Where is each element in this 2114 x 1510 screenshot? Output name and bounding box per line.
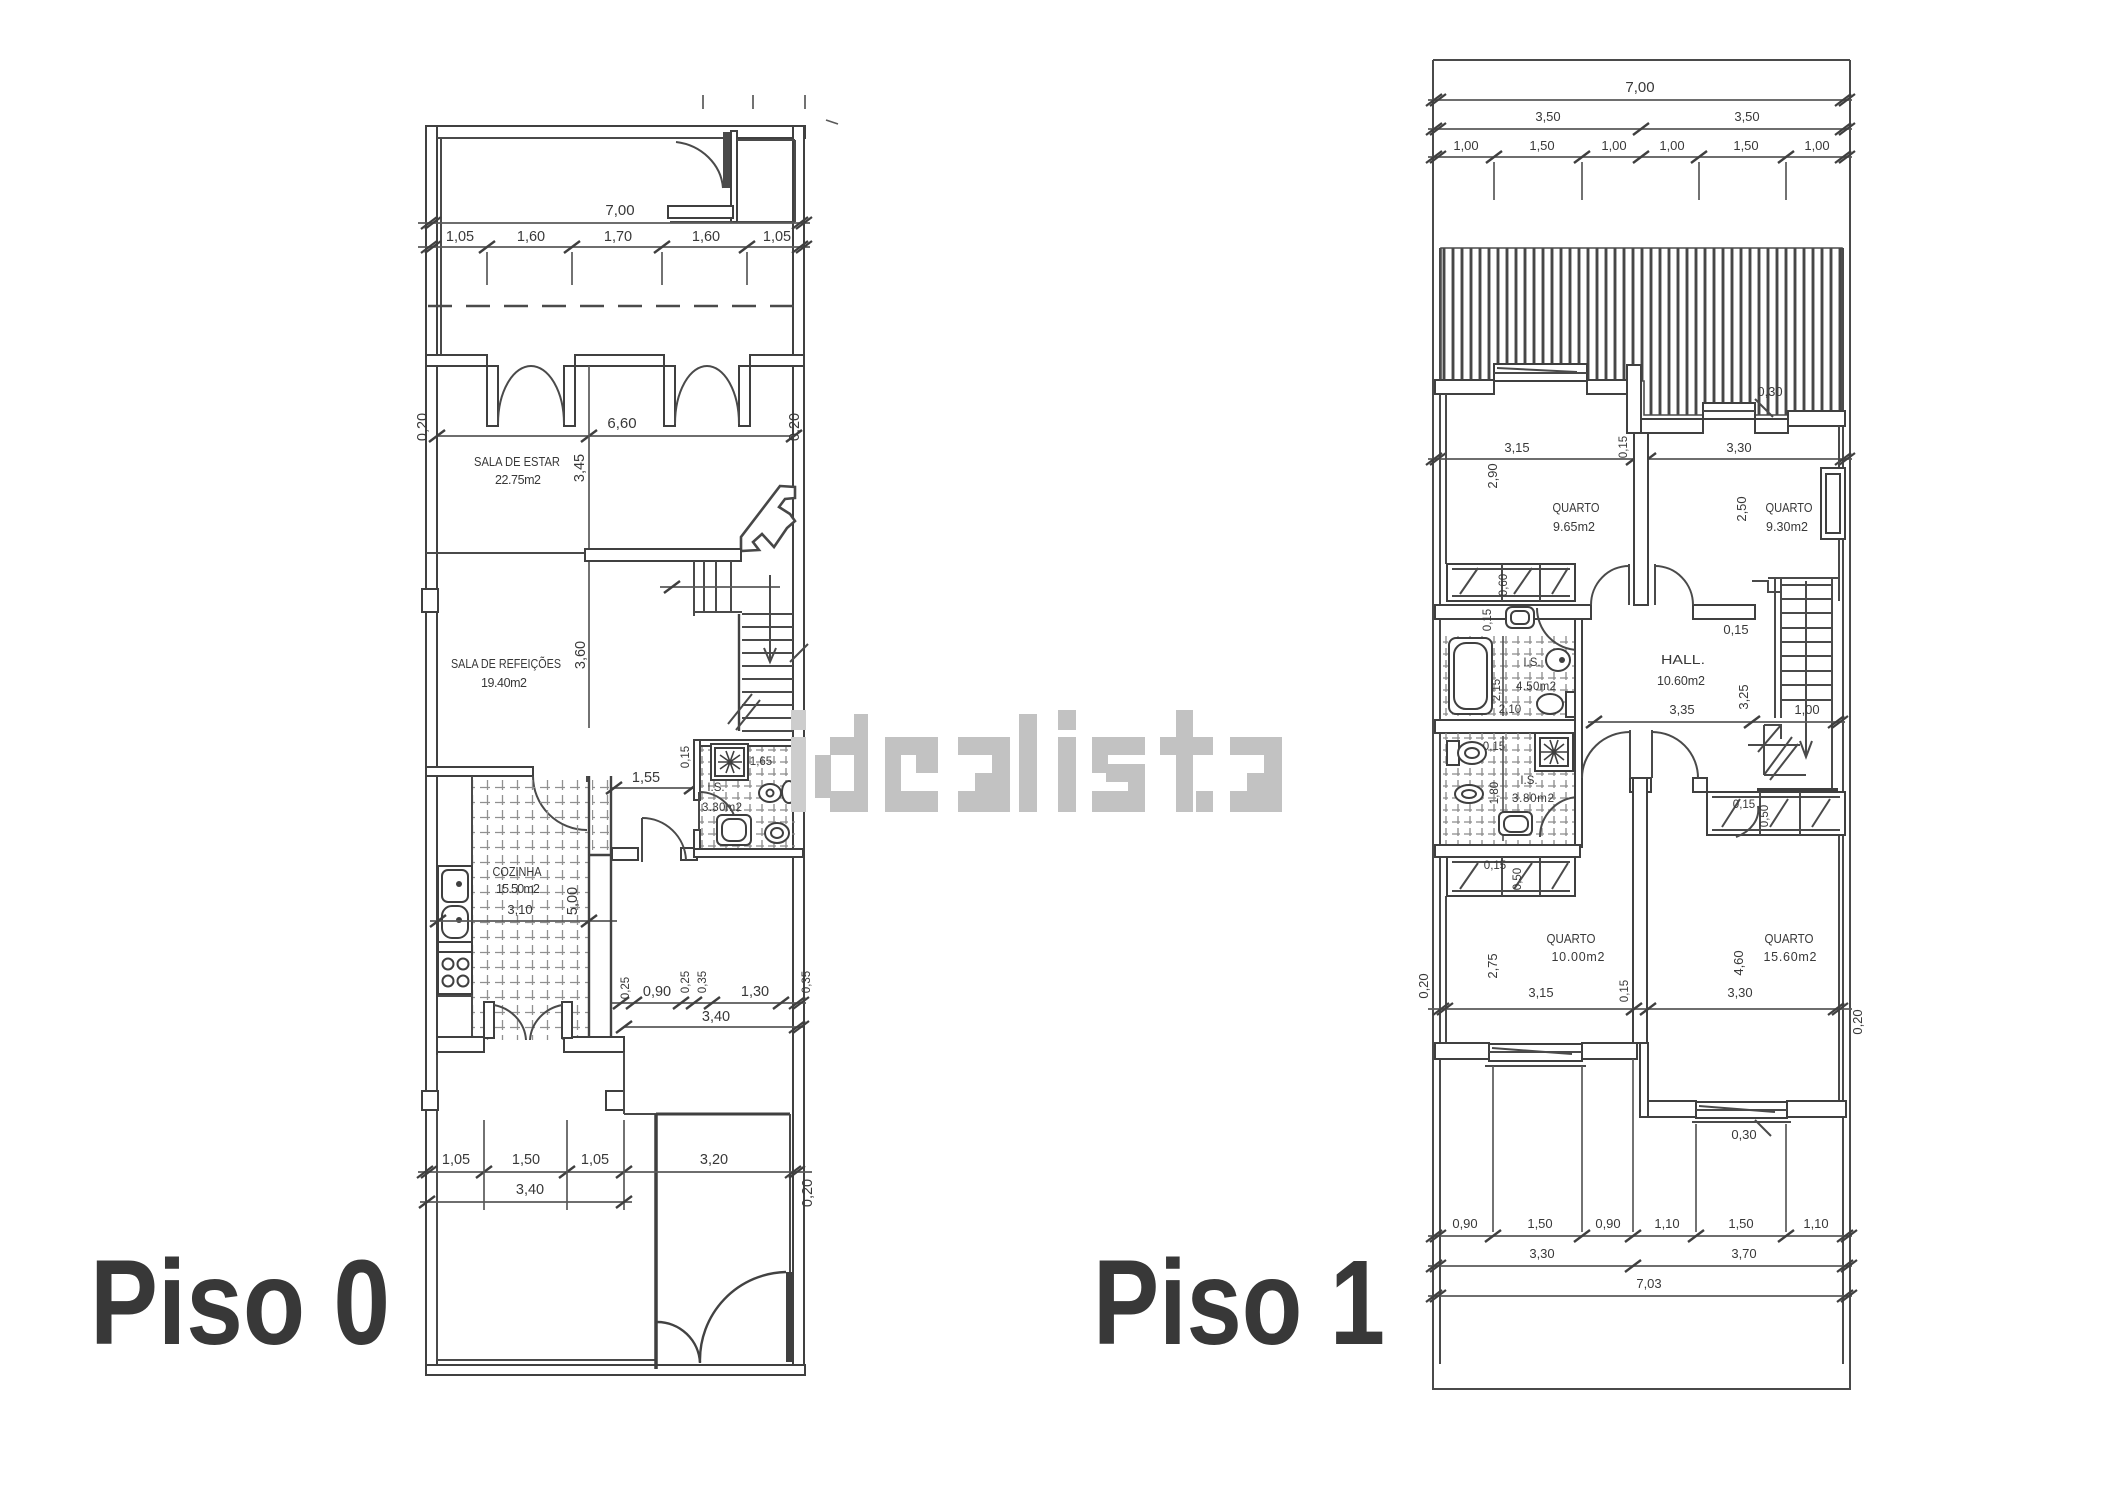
svg-text:1,60: 1,60 bbox=[692, 229, 720, 245]
svg-text:7,03: 7,03 bbox=[1636, 1276, 1661, 1291]
svg-text:0,30: 0,30 bbox=[1731, 1127, 1756, 1142]
svg-text:QUARTO: QUARTO bbox=[1547, 932, 1596, 946]
svg-text:0,15: 0,15 bbox=[1484, 860, 1506, 872]
svg-text:0,60: 0,60 bbox=[1498, 574, 1510, 596]
svg-text:22.75m2: 22.75m2 bbox=[495, 473, 541, 487]
svg-text:1,05: 1,05 bbox=[581, 1152, 609, 1168]
svg-text:1,80: 1,80 bbox=[1489, 782, 1501, 804]
svg-text:1,05: 1,05 bbox=[442, 1152, 470, 1168]
svg-text:1,70: 1,70 bbox=[604, 229, 632, 245]
svg-text:0,30: 0,30 bbox=[1757, 384, 1782, 399]
svg-text:0,90: 0,90 bbox=[643, 984, 671, 1000]
svg-text:1,65: 1,65 bbox=[750, 756, 772, 768]
svg-text:3,45: 3,45 bbox=[572, 454, 588, 482]
svg-text:1,50: 1,50 bbox=[512, 1152, 540, 1168]
svg-text:7,00: 7,00 bbox=[605, 202, 634, 219]
svg-text:15.50m2: 15.50m2 bbox=[496, 882, 540, 896]
svg-text:QUARTO: QUARTO bbox=[1553, 501, 1600, 515]
svg-text:9.30m2: 9.30m2 bbox=[1766, 520, 1808, 534]
svg-text:0,25: 0,25 bbox=[620, 977, 632, 999]
svg-text:0,90: 0,90 bbox=[1595, 1216, 1620, 1231]
svg-text:0,20: 0,20 bbox=[1850, 1009, 1865, 1034]
svg-text:1,00: 1,00 bbox=[1659, 138, 1684, 153]
svg-text:3,60: 3,60 bbox=[573, 641, 589, 669]
svg-text:Piso 0: Piso 0 bbox=[90, 1234, 390, 1370]
svg-text:3,50: 3,50 bbox=[1734, 109, 1759, 124]
svg-text:SALA DE REFEIÇÕES: SALA DE REFEIÇÕES bbox=[451, 656, 561, 671]
svg-text:1,00: 1,00 bbox=[1794, 702, 1819, 717]
svg-text:3,30: 3,30 bbox=[1727, 985, 1752, 1000]
svg-text:0,15: 0,15 bbox=[680, 746, 692, 768]
svg-text:1,05: 1,05 bbox=[446, 229, 474, 245]
svg-text:15.60m2: 15.60m2 bbox=[1764, 950, 1817, 964]
svg-text:0,15: 0,15 bbox=[1482, 609, 1494, 631]
svg-text:0,15: 0,15 bbox=[1618, 436, 1630, 458]
svg-text:2,75: 2,75 bbox=[1485, 953, 1500, 978]
svg-text:4.50m2: 4.50m2 bbox=[1516, 681, 1556, 693]
svg-text:1,50: 1,50 bbox=[1733, 138, 1758, 153]
svg-text:1,00: 1,00 bbox=[1804, 138, 1829, 153]
svg-text:I.S.: I.S. bbox=[1523, 657, 1540, 669]
svg-text:9.65m2: 9.65m2 bbox=[1553, 520, 1595, 534]
svg-text:3,15: 3,15 bbox=[1504, 440, 1529, 455]
svg-text:10.60m2: 10.60m2 bbox=[1657, 674, 1705, 688]
svg-text:2,15: 2,15 bbox=[1491, 679, 1503, 701]
svg-text:COZINHA: COZINHA bbox=[493, 865, 543, 879]
svg-text:19.40m2: 19.40m2 bbox=[481, 676, 527, 690]
svg-text:1,50: 1,50 bbox=[1527, 1216, 1552, 1231]
svg-text:1,05: 1,05 bbox=[763, 229, 791, 245]
svg-text:3,10: 3,10 bbox=[507, 902, 532, 917]
svg-text:0,20: 0,20 bbox=[1416, 973, 1431, 998]
svg-text:3,25: 3,25 bbox=[1736, 684, 1751, 709]
svg-text:3,20: 3,20 bbox=[700, 1152, 728, 1168]
svg-text:3,30: 3,30 bbox=[1726, 440, 1751, 455]
svg-text:0,15: 0,15 bbox=[1723, 622, 1748, 637]
svg-text:QUARTO: QUARTO bbox=[1765, 932, 1814, 946]
svg-text:1,00: 1,00 bbox=[1453, 138, 1478, 153]
svg-text:4,60: 4,60 bbox=[1731, 950, 1746, 975]
svg-text:1,60: 1,60 bbox=[517, 229, 545, 245]
svg-text:2,50: 2,50 bbox=[1734, 496, 1749, 521]
svg-text:3,70: 3,70 bbox=[1731, 1246, 1756, 1261]
svg-text:0,25: 0,25 bbox=[680, 971, 692, 993]
svg-text:3,40: 3,40 bbox=[516, 1182, 544, 1198]
svg-text:1,10: 1,10 bbox=[1654, 1216, 1679, 1231]
svg-text:1,00: 1,00 bbox=[1601, 138, 1626, 153]
svg-text:0,35: 0,35 bbox=[697, 971, 709, 993]
svg-text:3,35: 3,35 bbox=[1669, 702, 1694, 717]
svg-text:I.S.: I.S. bbox=[707, 782, 724, 794]
svg-text:1,10: 1,10 bbox=[1803, 1216, 1828, 1231]
svg-text:3,50: 3,50 bbox=[1535, 109, 1560, 124]
svg-text:I.S.: I.S. bbox=[1520, 775, 1537, 787]
svg-text:1,30: 1,30 bbox=[741, 984, 769, 1000]
svg-text:SALA DE ESTAR: SALA DE ESTAR bbox=[474, 455, 560, 469]
svg-text:0,20: 0,20 bbox=[787, 413, 803, 441]
svg-text:1,55: 1,55 bbox=[632, 770, 660, 786]
svg-text:0,15: 0,15 bbox=[1733, 799, 1755, 811]
svg-text:0,15: 0,15 bbox=[1483, 741, 1505, 753]
svg-text:6,60: 6,60 bbox=[607, 415, 636, 432]
svg-text:3,40: 3,40 bbox=[702, 1009, 730, 1025]
svg-text:0,50: 0,50 bbox=[1759, 805, 1771, 827]
svg-text:5,00: 5,00 bbox=[565, 887, 581, 915]
svg-text:1,50: 1,50 bbox=[1529, 138, 1554, 153]
svg-text:0,50: 0,50 bbox=[1512, 868, 1524, 890]
svg-text:QUARTO: QUARTO bbox=[1766, 501, 1813, 515]
svg-text:1,50: 1,50 bbox=[1728, 1216, 1753, 1231]
svg-text:Piso 1: Piso 1 bbox=[1093, 1234, 1385, 1370]
svg-text:2,90: 2,90 bbox=[1485, 463, 1500, 488]
svg-text:0,20: 0,20 bbox=[800, 1179, 816, 1207]
svg-text:HALL.: HALL. bbox=[1661, 653, 1705, 667]
svg-text:0,20: 0,20 bbox=[415, 413, 431, 441]
svg-text:7,00: 7,00 bbox=[1625, 79, 1654, 96]
svg-text:3,30: 3,30 bbox=[1529, 1246, 1554, 1261]
svg-text:10.00m2: 10.00m2 bbox=[1552, 950, 1605, 964]
svg-text:2,10: 2,10 bbox=[1499, 704, 1521, 716]
svg-text:3.80m2: 3.80m2 bbox=[1512, 793, 1554, 805]
svg-text:0,90: 0,90 bbox=[1452, 1216, 1477, 1231]
svg-text:0,35: 0,35 bbox=[801, 971, 813, 993]
svg-text:0,15: 0,15 bbox=[1619, 980, 1631, 1002]
svg-text:3.30m2: 3.30m2 bbox=[702, 802, 742, 814]
svg-text:3,15: 3,15 bbox=[1528, 985, 1553, 1000]
